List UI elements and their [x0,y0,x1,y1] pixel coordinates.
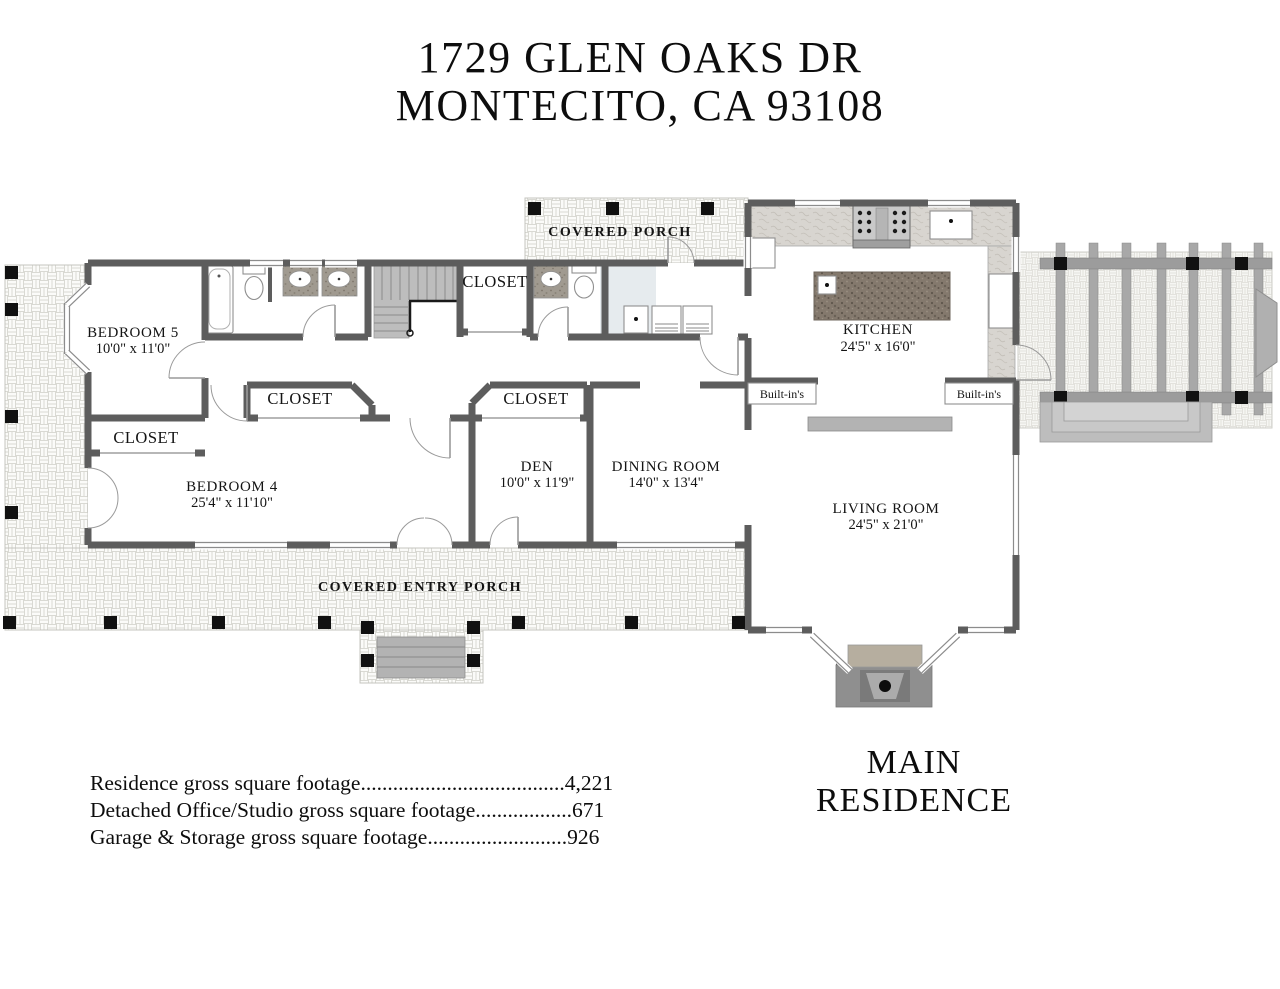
toilet-bowl [245,277,263,300]
patio-steps [1040,402,1212,442]
closet-label: CLOSET [267,389,332,408]
living-room-cabinet [808,417,952,431]
bedroom4-dims: 25'4" x 11'10" [191,495,273,511]
bedroom4-label: BEDROOM 4 [186,479,278,495]
living-room-dims: 24'5" x 21'0" [848,517,923,533]
den-label: DEN [521,459,554,475]
covered-entry-porch-label: COVERED ENTRY PORCH [318,580,522,595]
range [853,206,910,248]
closet-label: CLOSET [462,272,527,291]
covered-porch-label: COVERED PORCH [548,225,692,240]
plan-title: MAIN RESIDENCE [764,744,1064,820]
closet-label: CLOSET [113,428,178,447]
toilet-bowl [575,276,594,298]
cabinet [751,238,775,268]
closet-label: CLOSET [503,389,568,408]
footage-residence: Residence gross square footage..........… [90,770,613,797]
dining-room-dims: 14'0" x 13'4" [628,475,703,491]
kitchen-sink [930,211,972,239]
bedroom5-label: BEDROOM 5 [87,325,179,341]
fireplace [836,645,932,707]
laundry-appliances [624,306,712,334]
footage-garage-storage: Garage & Storage gross square footage...… [90,824,613,851]
dining-room-label: DINING ROOM [612,459,721,475]
living-room-label: LIVING ROOM [832,501,939,517]
refrigerator [989,274,1014,328]
floor-plan-page: 1729 GLEN OAKS DR MONTECITO, CA 93108 [0,0,1280,989]
footage-office-studio: Detached Office/Studio gross square foot… [90,797,613,824]
outdoor-fireplace [1256,289,1277,377]
kitchen-label: KITCHEN [843,322,913,338]
den-dims: 10'0" x 11'9" [500,475,575,491]
kitchen-dims: 24'5" x 16'0" [840,339,915,355]
powder-room-fixtures [534,264,596,298]
built-ins-left-label: Built-in's [760,387,804,401]
square-footage-summary: Residence gross square footage..........… [90,770,613,851]
bedroom5-dims: 10'0" x 11'0" [96,341,171,357]
built-ins-right-label: Built-in's [957,387,1001,401]
entry-steps [377,637,465,678]
kitchen-island [814,272,950,320]
